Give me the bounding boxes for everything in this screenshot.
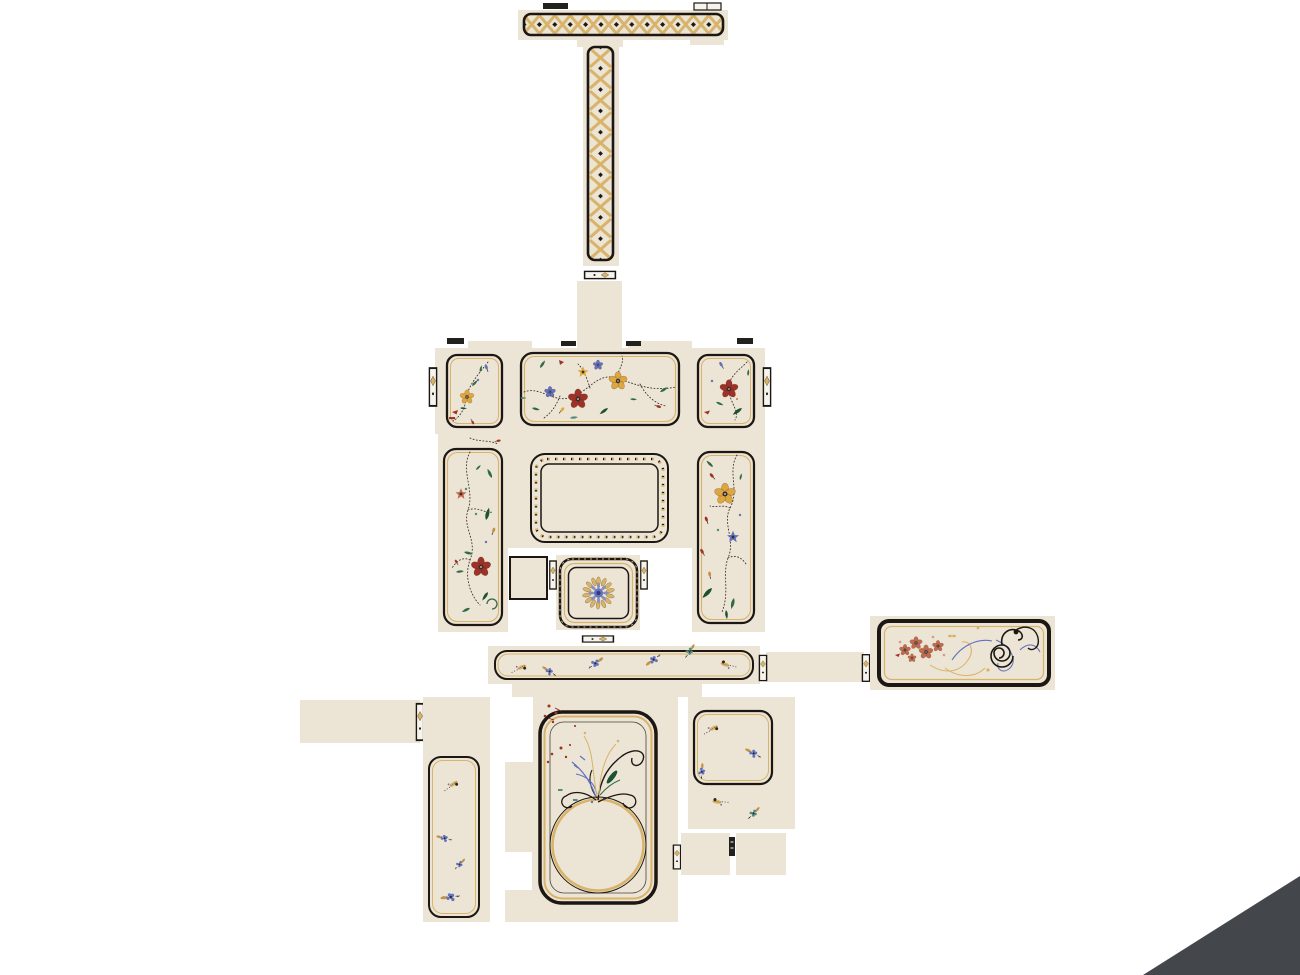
body-right-connector xyxy=(763,368,770,406)
lower-right-tabs xyxy=(681,833,786,875)
unfold-template-canvas xyxy=(0,0,1300,975)
neck-strip-piece xyxy=(577,281,622,349)
left-link-strip-piece xyxy=(300,700,420,743)
bottom-body-piece xyxy=(505,684,678,922)
link-strip-right-connector xyxy=(862,655,869,682)
left-strip-connector xyxy=(416,704,423,740)
rosette-left-connector xyxy=(550,561,556,589)
link-strip-left-connector xyxy=(759,655,766,680)
lattice-inlay-vertical xyxy=(588,47,613,260)
top-rail-piece xyxy=(518,10,728,47)
scrollwork-panel-piece xyxy=(870,616,1055,690)
left-sprig-column-piece xyxy=(423,697,490,922)
bottom-body-notch xyxy=(505,852,532,890)
bottom-body-right-connector xyxy=(673,845,680,869)
sprig-square-piece xyxy=(688,697,795,829)
lattice-inlay-horizontal xyxy=(524,14,723,35)
top-rail-registration-marks xyxy=(543,3,721,10)
column-connector xyxy=(585,271,616,278)
spacer-square-piece xyxy=(510,557,547,599)
body-left-connector xyxy=(429,368,436,406)
right-link-strip-piece xyxy=(766,652,864,682)
rosette-bottom-connector xyxy=(583,636,614,642)
template-drawing xyxy=(0,0,1300,975)
rosette-right-connector xyxy=(641,561,647,589)
rosette-tile-piece xyxy=(556,555,640,630)
corner-triangle xyxy=(1143,876,1300,975)
lattice-column-piece xyxy=(583,40,619,266)
